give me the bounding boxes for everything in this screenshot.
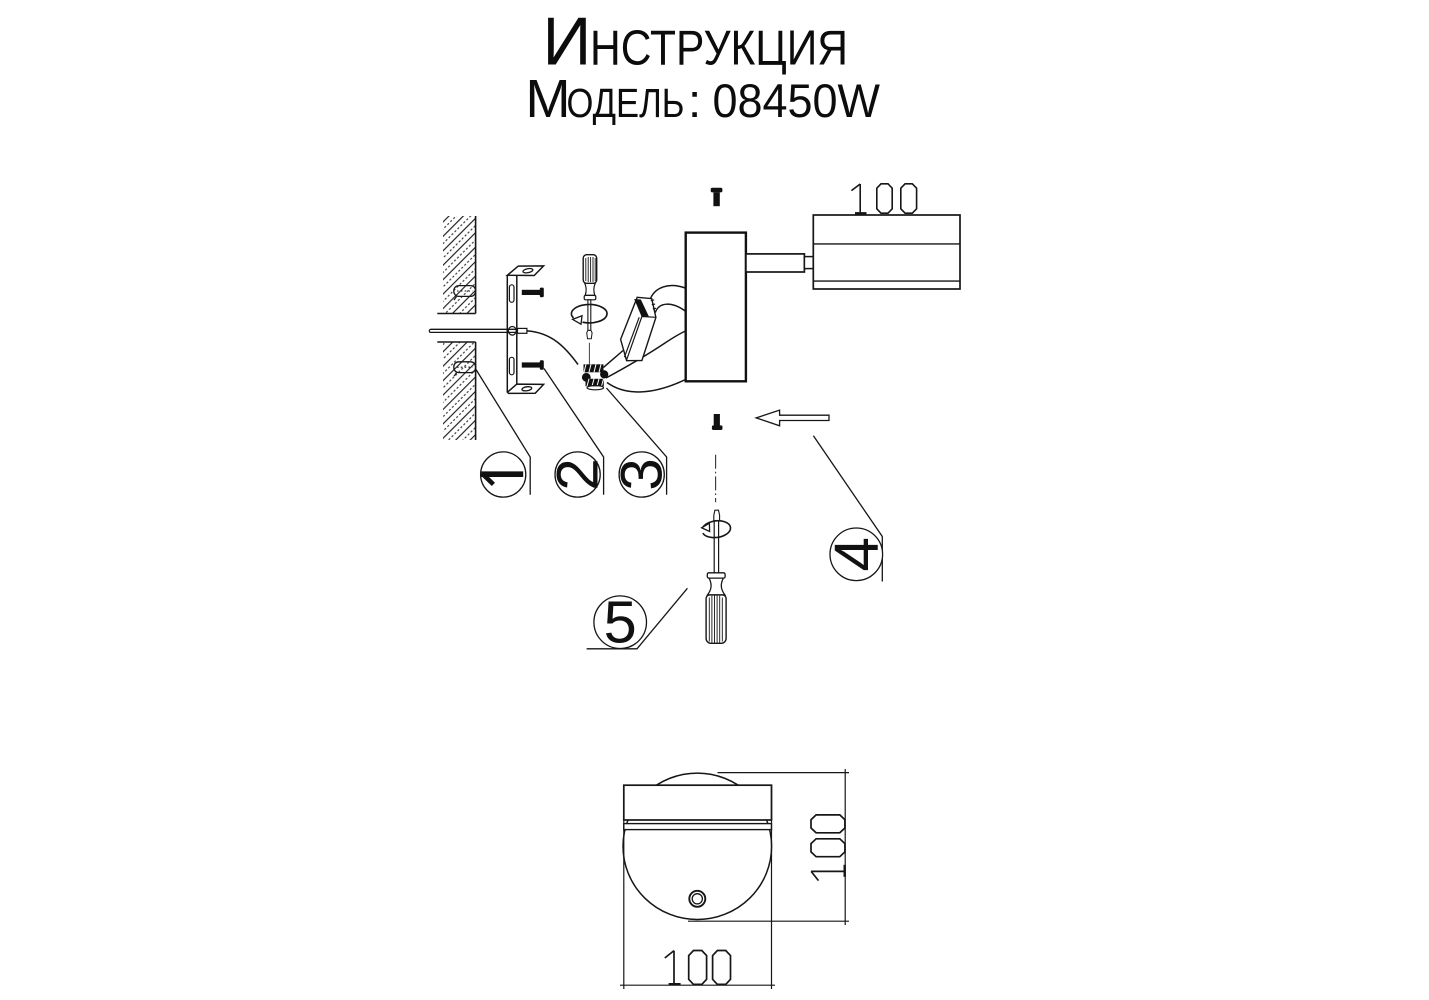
svg-text:М: М	[526, 69, 571, 129]
svg-text:3: 3	[610, 458, 675, 490]
svg-text::: :	[688, 75, 701, 128]
svg-text:08450W: 08450W	[713, 75, 881, 128]
svg-text:5: 5	[604, 589, 637, 656]
svg-text:НСТРУКЦИЯ: НСТРУКЦИЯ	[590, 21, 848, 76]
svg-text:4: 4	[823, 537, 892, 571]
svg-text:ОДЕЛЬ: ОДЕЛЬ	[567, 80, 685, 126]
svg-text:2: 2	[546, 458, 611, 490]
